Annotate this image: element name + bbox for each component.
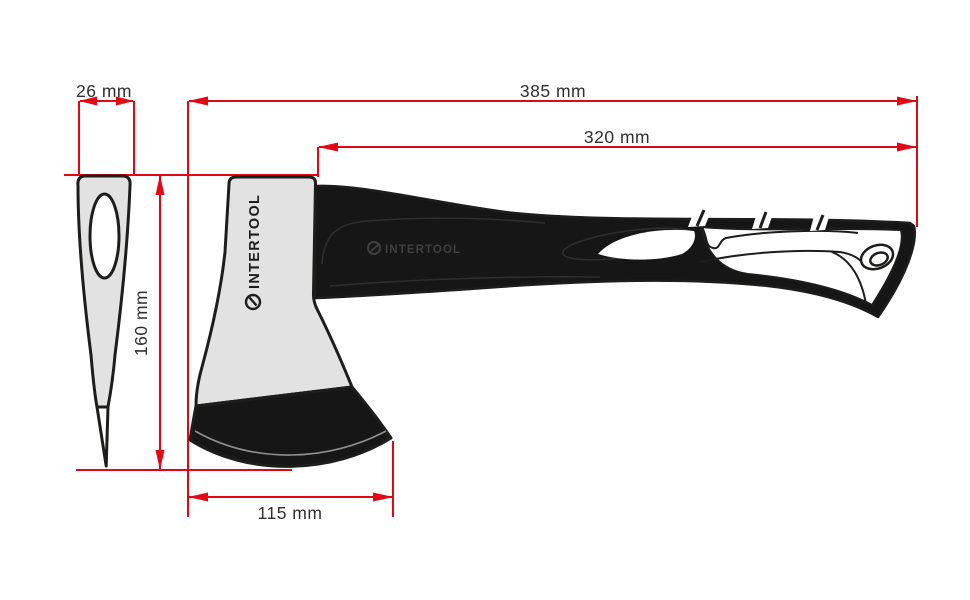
intertool-logo-head-text: INTERTOOL (247, 194, 263, 289)
dimension-label-head-height: 160 mm (131, 290, 151, 356)
eye-hole (90, 194, 119, 278)
axe-handle: INTERTOOL (315, 186, 915, 317)
diagram-canvas: 26 mm 385 mm 320 mm 160 mm 115 mm (0, 0, 970, 600)
axe-head-top-view (78, 176, 130, 466)
dimension-lines (64, 96, 917, 517)
head-top-view-edge-tip (97, 407, 108, 466)
axe-dimension-diagram: 26 mm 385 mm 320 mm 160 mm 115 mm (0, 0, 970, 600)
dimension-label-handle-length: 320 mm (584, 127, 650, 147)
dimension-label-blade-width: 115 mm (258, 503, 323, 523)
dimension-label-head-width: 26 mm (76, 81, 132, 101)
dimension-label-total-length: 385 mm (520, 81, 586, 101)
intertool-logo-handle-text: INTERTOOL (385, 244, 461, 256)
